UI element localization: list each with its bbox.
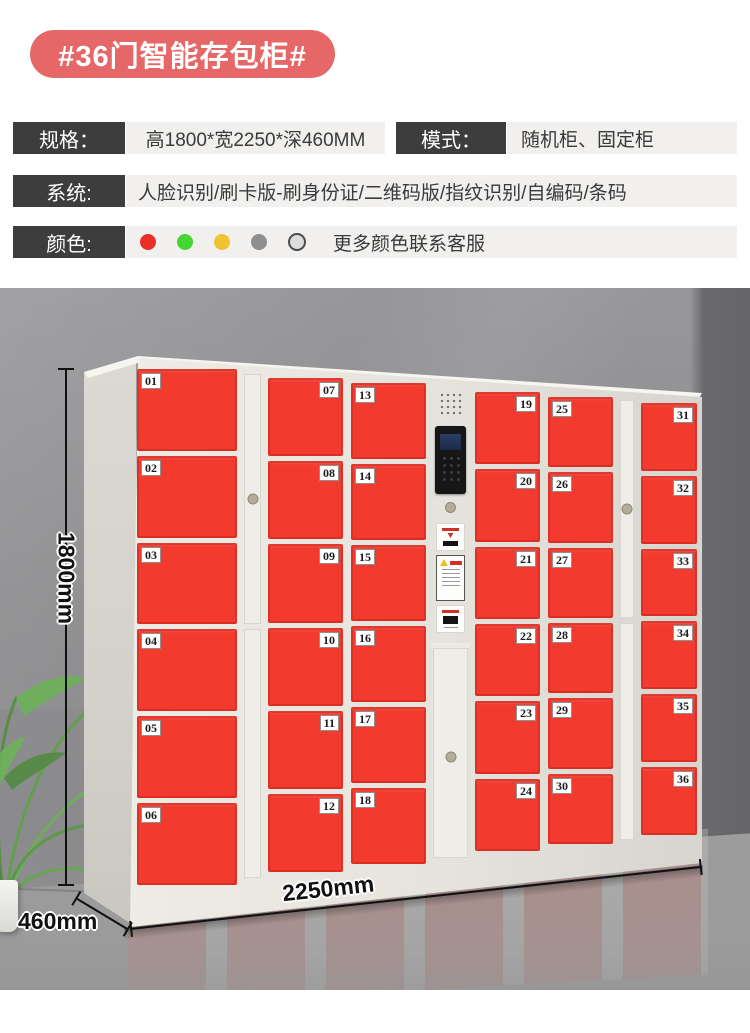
door-number-tag: 15 [355, 549, 375, 565]
door-number-tag: 36 [673, 771, 693, 787]
sticker-black-bar [443, 541, 458, 546]
locker-door-31: 31 [641, 403, 697, 471]
color-swatch-yellow [214, 234, 230, 250]
plant-pot [0, 880, 18, 932]
door-number-tag: 31 [673, 407, 693, 423]
door-number-tag: 08 [319, 465, 339, 481]
color-swatch-gray [251, 234, 267, 250]
barcode-icon [443, 616, 458, 624]
locker-door-26: 26 [548, 472, 613, 542]
locker-door-05: 05 [137, 716, 237, 798]
product-detail-image: #36门智能存包柜# 规格： 高1800*宽2250*深460MM 模式： 随机… [0, 0, 750, 1033]
door-number-tag: 19 [516, 396, 536, 412]
sticker-text-line [444, 627, 458, 628]
warning-text-line [442, 569, 460, 570]
warning-text-line [442, 577, 460, 578]
door-number-tag: 11 [320, 715, 339, 731]
keypad-icon [440, 454, 461, 484]
locker-door-35: 35 [641, 694, 697, 762]
door-number-tag: 32 [673, 480, 693, 496]
door-number-tag: 24 [516, 783, 536, 799]
product-title-badge: #36门智能存包柜# [30, 30, 335, 78]
warning-sticker [436, 555, 465, 601]
door-number-tag: 05 [141, 720, 161, 736]
locker-door-24: 24 [475, 779, 540, 851]
side-strip-door-lower [620, 623, 634, 841]
locker-door-09: 09 [268, 544, 343, 622]
speaker-grille-icon [439, 392, 463, 418]
locker-door-22: 22 [475, 624, 540, 696]
locker-door-21: 21 [475, 547, 540, 619]
locker-door-29: 29 [548, 698, 613, 768]
locker-column-4: 192021222324 [472, 384, 543, 884]
locker-door-02: 02 [137, 456, 237, 538]
locker-column-2: 070809101112 [265, 370, 346, 907]
warning-text-line [442, 573, 460, 574]
door-number-tag: 03 [141, 547, 161, 563]
color-swatch-row [140, 233, 306, 251]
door-number-tag: 04 [141, 633, 161, 649]
product-title: #36门智能存包柜# [58, 33, 307, 75]
warning-text-line [442, 585, 460, 586]
spec-value-mode: 随机柜、固定柜 [507, 122, 737, 154]
warning-title-text [450, 561, 462, 565]
height-dimension-line [65, 368, 67, 886]
door-number-tag: 10 [319, 632, 339, 648]
door-number-tag: 21 [516, 551, 536, 567]
color-swatch-red [140, 234, 156, 250]
locker-door-27: 27 [548, 548, 613, 618]
locker-door-14: 14 [351, 464, 426, 540]
door-number-tag: 01 [141, 373, 161, 389]
locker-door-07: 07 [268, 378, 343, 456]
sticker-red-text [442, 610, 459, 613]
spec-value-size: 高1800*宽2250*深460MM [126, 122, 385, 154]
locker-door-32: 32 [641, 476, 697, 544]
locker-side-strip-1 [242, 366, 263, 913]
locker-door-01: 01 [137, 369, 237, 451]
spec-label-color: 颜色: [13, 226, 125, 258]
locker-column-5: 252627282930 [545, 389, 616, 876]
locker-door-17: 17 [351, 707, 426, 783]
locker-door-13: 13 [351, 383, 426, 459]
warning-text-line [442, 581, 460, 582]
side-strip-door-upper [620, 400, 634, 618]
locker-door-19: 19 [475, 392, 540, 464]
door-number-tag: 02 [141, 460, 161, 476]
locker-column-1: 010203040506 [134, 361, 240, 921]
door-number-tag: 17 [355, 711, 375, 727]
color-note: 更多颜色联系客服 [333, 229, 485, 256]
locker-door-06: 06 [137, 803, 237, 885]
locker-door-11: 11 [268, 711, 343, 789]
door-number-tag: 14 [355, 468, 375, 484]
door-number-tag: 18 [355, 792, 375, 808]
locker-door-15: 15 [351, 545, 426, 621]
spec-label-mode: 模式： [396, 122, 506, 154]
locker-door-16: 16 [351, 626, 426, 702]
barcode-sticker [436, 605, 465, 633]
locker-door-23: 23 [475, 701, 540, 773]
locker-door-34: 34 [641, 621, 697, 689]
control-panel [435, 426, 466, 494]
height-dimension-label: 1800mm [53, 532, 80, 624]
spec-label-size: 规格： [13, 122, 125, 154]
door-number-tag: 29 [552, 702, 572, 718]
locker-door-20: 20 [475, 469, 540, 541]
door-number-tag: 09 [319, 548, 339, 564]
warning-triangle-icon [440, 559, 448, 566]
depth-dimension-label: 460mm [18, 908, 97, 935]
product-photo: 010203040506 070809101112 131415161718 [0, 288, 750, 990]
locker-door-12: 12 [268, 794, 343, 872]
side-strip-door-lower [244, 629, 261, 879]
spec-label-system: 系统: [13, 175, 125, 207]
door-number-tag: 28 [552, 627, 572, 643]
locker-side-strip-2 [618, 392, 636, 871]
door-number-tag: 23 [516, 705, 536, 721]
sticker-red-text [442, 528, 459, 531]
control-tower-face [431, 380, 470, 858]
lock-keyhole [445, 752, 456, 763]
door-number-tag: 34 [673, 625, 693, 641]
control-tower [431, 380, 470, 891]
locker-door-33: 33 [641, 549, 697, 617]
sticker-arrow-icon [448, 533, 454, 538]
locker-door-04: 04 [137, 629, 237, 711]
instruction-sticker [436, 523, 465, 551]
locker-door-28: 28 [548, 623, 613, 693]
display-screen [440, 434, 461, 450]
locker-door-30: 30 [548, 774, 613, 844]
locker-door-10: 10 [268, 628, 343, 706]
door-number-tag: 35 [673, 698, 693, 714]
door-number-tag: 06 [141, 807, 161, 823]
lock-keyhole [247, 493, 258, 504]
color-swatch-more-custom [288, 233, 306, 251]
locker-door-18: 18 [351, 788, 426, 864]
door-number-tag: 26 [552, 476, 572, 492]
door-number-tag: 33 [673, 553, 693, 569]
lock-keyhole [622, 503, 633, 514]
color-swatch-green [177, 234, 193, 250]
door-number-tag: 12 [319, 798, 339, 814]
door-number-tag: 22 [516, 628, 536, 644]
door-number-tag: 07 [319, 382, 339, 398]
locker-column-6: 313233343536 [638, 395, 700, 866]
warning-header [440, 559, 462, 566]
door-number-tag: 13 [355, 387, 375, 403]
spec-value-system: 人脸识别/刷卡版-刷身份证/二维码版/指纹识别/自编码/条码 [126, 175, 737, 207]
locker-column-3: 131415161718 [348, 375, 429, 898]
locker-door-25: 25 [548, 397, 613, 467]
door-number-tag: 20 [516, 473, 536, 489]
door-number-tag: 30 [552, 778, 572, 794]
locker-door-36: 36 [641, 767, 697, 835]
door-number-tag: 16 [355, 630, 375, 646]
panel-lock-keyhole [445, 502, 456, 513]
locker-door-03: 03 [137, 543, 237, 625]
door-number-tag: 25 [552, 401, 572, 417]
door-number-tag: 27 [552, 552, 572, 568]
locker-door-08: 08 [268, 461, 343, 539]
side-strip-door-upper [244, 374, 261, 624]
tower-lower-door [433, 648, 468, 858]
spec-value-color: 更多颜色联系客服 [126, 226, 737, 258]
